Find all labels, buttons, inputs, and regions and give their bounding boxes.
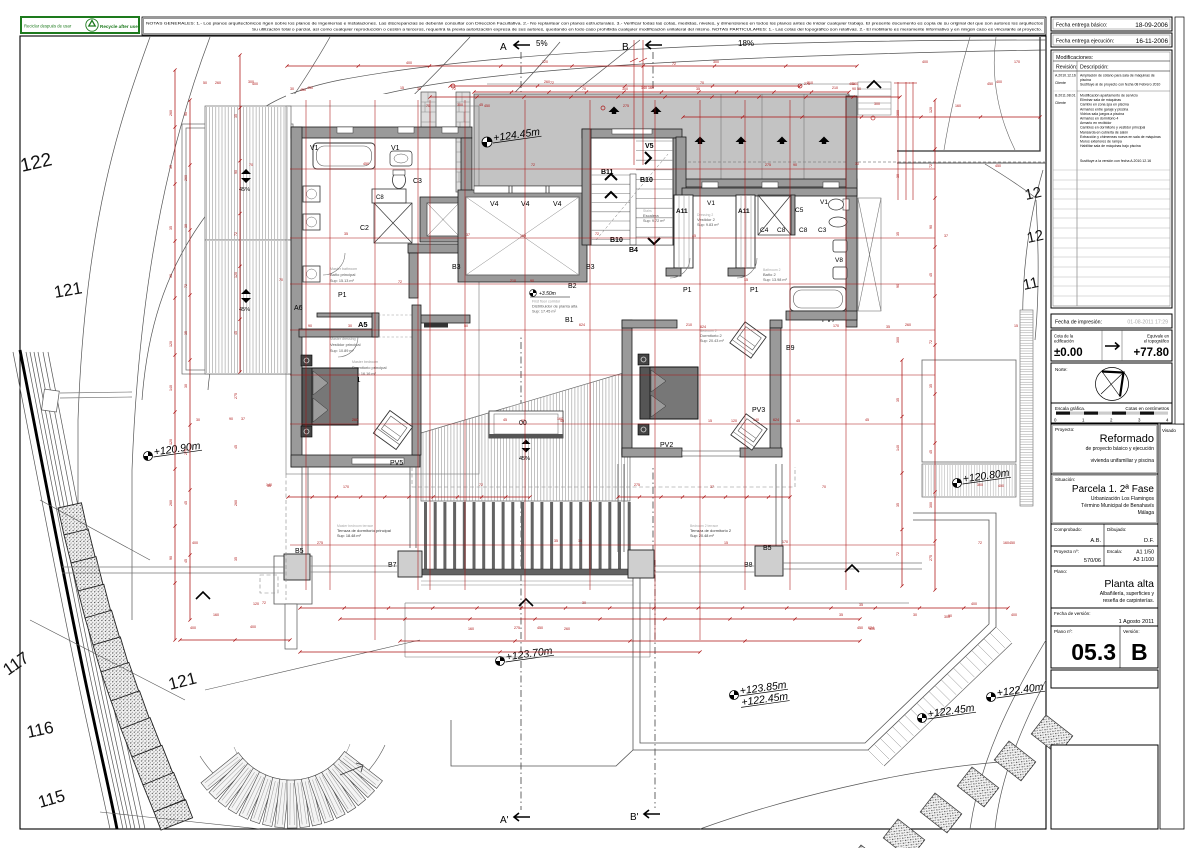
svg-text:A: A: [500, 42, 507, 53]
svg-text:Cliente: Cliente: [1055, 81, 1066, 85]
svg-text:V8: V8: [835, 257, 843, 264]
svg-text:12: 12: [1023, 184, 1043, 204]
svg-text:Mansarda en cubierta de salón: Mansarda en cubierta de salón: [1080, 130, 1128, 134]
svg-text:35: 35: [839, 613, 843, 617]
svg-text:C3: C3: [818, 227, 827, 234]
svg-text:C4: C4: [760, 227, 769, 234]
svg-text:P1: P1: [338, 292, 347, 299]
svg-text:C5: C5: [795, 207, 804, 214]
svg-text:NOTAS GENERALES: 1.- Los pla: NOTAS GENERALES: 1.- Los planos arquitec…: [146, 21, 1043, 26]
svg-text:300: 300: [896, 337, 900, 343]
svg-text:C8: C8: [777, 227, 786, 234]
svg-text:A1 1/50: A1 1/50: [1136, 550, 1154, 556]
svg-text:140: 140: [169, 385, 173, 391]
svg-text:260: 260: [234, 500, 238, 506]
svg-text:300: 300: [944, 615, 950, 619]
svg-text:B5: B5: [763, 545, 772, 552]
svg-text:PV3: PV3: [752, 407, 765, 414]
svg-text:18-09-2006: 18-09-2006: [1135, 22, 1168, 29]
svg-text:260: 260: [905, 323, 911, 327]
svg-text:45: 45: [865, 418, 869, 422]
svg-text:35: 35: [169, 226, 173, 230]
svg-text:B7: B7: [388, 562, 397, 569]
svg-text:72: 72: [978, 541, 982, 545]
svg-text:Extracción y chimeneas nueva e: Extracción y chimeneas nueva en sala de …: [1080, 135, 1161, 139]
svg-text:90: 90: [852, 87, 856, 91]
svg-text:70: 70: [700, 81, 704, 85]
svg-text:Escalera: Escalera: [643, 213, 659, 218]
svg-text:45: 45: [929, 273, 933, 277]
svg-text:C2: C2: [360, 225, 369, 232]
svg-text:400: 400: [869, 627, 875, 631]
svg-text:72: 72: [896, 552, 900, 556]
svg-text:170: 170: [782, 540, 788, 544]
svg-text:450: 450: [537, 626, 543, 630]
svg-text:Dormitorio 2: Dormitorio 2: [700, 333, 723, 338]
svg-text:V4: V4: [553, 201, 562, 208]
svg-text:reseña de carpinterías.: reseña de carpinterías.: [1103, 598, 1154, 604]
svg-text:Cambio en zona spa en piscina: Cambio en zona spa en piscina: [1080, 103, 1129, 107]
svg-text:05.3: 05.3: [1071, 639, 1116, 665]
svg-text:V5: V5: [645, 143, 654, 150]
svg-text:A6: A6: [294, 305, 303, 312]
svg-text:35: 35: [929, 384, 933, 388]
svg-text:450: 450: [300, 88, 306, 92]
svg-text:A.B.: A.B.: [1090, 538, 1101, 544]
svg-text:450: 450: [995, 164, 1001, 168]
svg-text:PV2: PV2: [660, 442, 673, 449]
svg-text:300: 300: [896, 110, 900, 116]
svg-text:Málaga: Málaga: [1138, 510, 1155, 516]
svg-text:B1: B1: [565, 317, 574, 324]
svg-text:Sup: 9.72 m²: Sup: 9.72 m²: [643, 219, 665, 223]
svg-text:300: 300: [874, 102, 880, 106]
svg-text:140: 140: [852, 82, 858, 86]
svg-text:170: 170: [1014, 60, 1020, 64]
svg-text:35: 35: [696, 87, 700, 91]
svg-text:275: 275: [514, 626, 520, 630]
svg-text:15: 15: [744, 278, 748, 282]
svg-text:Armarios entre garaje y piscin: Armarios entre garaje y piscina: [1080, 107, 1128, 111]
svg-text:170: 170: [833, 324, 839, 328]
svg-text:Urbanización Los Flamingos: Urbanización Los Flamingos: [1091, 496, 1155, 502]
svg-text:275: 275: [317, 541, 323, 545]
svg-text:A': A': [500, 815, 509, 826]
svg-text:400: 400: [971, 602, 977, 606]
svg-text:Situación:: Situación:: [1055, 477, 1075, 482]
svg-text:45: 45: [929, 450, 933, 454]
svg-text:450: 450: [307, 86, 313, 90]
svg-text:Reformado: Reformado: [1100, 433, 1154, 445]
svg-text:72: 72: [531, 163, 535, 167]
svg-text:90: 90: [793, 163, 797, 167]
svg-text:Su utilización total o parcial: Su utilización total o parcial, así como…: [252, 27, 1042, 32]
svg-text:570/06: 570/06: [1084, 558, 1101, 564]
svg-text:70: 70: [279, 278, 283, 282]
svg-text:Sup: 18.48 m²: Sup: 18.48 m²: [337, 534, 362, 538]
svg-text:160: 160: [520, 234, 526, 238]
svg-text:Escala gráfica.: Escala gráfica.: [1055, 406, 1085, 411]
svg-text:Sup: 17.45 m²: Sup: 17.45 m²: [532, 310, 557, 314]
svg-text:450: 450: [857, 626, 863, 630]
svg-text:45: 45: [796, 419, 800, 423]
svg-text:70: 70: [249, 163, 253, 167]
svg-text:45: 45: [234, 445, 238, 449]
svg-text:30: 30: [582, 601, 586, 605]
svg-text:B9: B9: [786, 345, 795, 352]
svg-text:Terraza de dormitorio 2: Terraza de dormitorio 2: [690, 528, 732, 533]
svg-text:210: 210: [686, 323, 692, 327]
svg-text:A.2010.12.16: A.2010.12.16: [1055, 74, 1076, 78]
svg-text:50: 50: [203, 81, 207, 85]
svg-text:C3: C3: [413, 178, 422, 185]
svg-text:90: 90: [896, 284, 900, 288]
svg-text:B.2011.08.01: B.2011.08.01: [1055, 94, 1076, 98]
svg-text:170: 170: [343, 485, 349, 489]
svg-text:400: 400: [996, 80, 1002, 84]
svg-text:120: 120: [234, 272, 238, 278]
svg-text:120: 120: [929, 107, 933, 113]
svg-text:piscina: piscina: [1080, 78, 1091, 82]
svg-text:Baño principal: Baño principal: [330, 272, 355, 277]
svg-text:72: 72: [479, 483, 483, 487]
svg-text:450: 450: [1009, 541, 1015, 545]
svg-text:35: 35: [886, 325, 890, 329]
svg-text:45: 45: [184, 501, 188, 505]
svg-text:45: 45: [560, 419, 564, 423]
svg-text:120: 120: [731, 419, 737, 423]
svg-text:275: 275: [929, 555, 933, 561]
svg-text:Modificaciones:: Modificaciones:: [1056, 55, 1093, 61]
svg-text:Eliminar sala de máquinas: Eliminar sala de máquinas: [1080, 98, 1121, 102]
svg-text:45%: 45%: [239, 187, 250, 193]
svg-text:30: 30: [348, 324, 352, 328]
svg-text:PV5: PV5: [390, 460, 403, 467]
svg-text:V4: V4: [521, 201, 530, 208]
svg-text:Cliente: Cliente: [1055, 101, 1066, 105]
svg-text:35: 35: [896, 398, 900, 402]
svg-text:90: 90: [229, 417, 233, 421]
svg-text:140: 140: [641, 86, 647, 90]
svg-text:275: 275: [765, 163, 771, 167]
svg-text:30: 30: [913, 613, 917, 617]
svg-text:Reciclar después de usar: Reciclar después de usar: [24, 23, 72, 28]
svg-text:Habilitar sala de máquinas baj: Habilitar sala de máquinas bajo piscina: [1080, 144, 1141, 148]
svg-text:72: 72: [550, 81, 554, 85]
svg-text:A5: A5: [358, 320, 368, 329]
svg-text:Término Municipal de Benahavís: Término Municipal de Benahavís: [1081, 503, 1154, 509]
svg-text:45: 45: [234, 331, 238, 335]
svg-text:400: 400: [192, 541, 198, 545]
svg-text:70: 70: [822, 485, 826, 489]
svg-text:37: 37: [944, 234, 948, 238]
svg-text:90: 90: [234, 170, 238, 174]
svg-text:B5: B5: [295, 548, 304, 555]
svg-text:Sustituye al de proyecto con f: Sustituye al de proyecto con fecha 08 Fe…: [1080, 83, 1160, 87]
svg-text:1 Agosto 2011: 1 Agosto 2011: [1119, 619, 1154, 625]
svg-text:50: 50: [857, 87, 861, 91]
svg-text:275: 275: [184, 449, 188, 455]
svg-text:72: 72: [929, 164, 933, 168]
svg-text:Sup: 20.48 m²: Sup: 20.48 m²: [690, 534, 715, 538]
svg-text:37: 37: [466, 233, 470, 237]
svg-text:Sustituye a la versión con fec: Sustituye a la versión con fecha A.2010.…: [1080, 159, 1151, 163]
svg-text:90: 90: [169, 556, 173, 560]
svg-text:72: 72: [184, 284, 188, 288]
svg-text:72: 72: [672, 62, 676, 66]
svg-text:120: 120: [542, 60, 548, 64]
svg-text:Comprobado:: Comprobado:: [1054, 527, 1082, 532]
svg-text:260: 260: [215, 81, 221, 85]
svg-text:120: 120: [253, 602, 259, 606]
svg-text:300: 300: [713, 60, 719, 64]
svg-text:30: 30: [196, 418, 200, 422]
svg-text:140: 140: [266, 483, 272, 487]
svg-text:90: 90: [308, 324, 312, 328]
svg-text:V1: V1: [820, 199, 828, 206]
svg-text:D.F.: D.F.: [1144, 538, 1154, 544]
svg-text:30: 30: [855, 162, 859, 166]
svg-text:15: 15: [1014, 324, 1018, 328]
svg-text:A3 1/100: A3 1/100: [1133, 557, 1154, 563]
svg-text:35: 35: [859, 603, 863, 607]
svg-text:45: 45: [184, 559, 188, 563]
svg-text:72: 72: [452, 87, 456, 91]
svg-text:624: 624: [579, 323, 585, 327]
svg-text:Revisión:: Revisión:: [1056, 65, 1077, 71]
svg-text:140: 140: [896, 445, 900, 451]
svg-text:275: 275: [623, 104, 629, 108]
svg-text:160: 160: [1003, 541, 1009, 545]
svg-text:35: 35: [554, 539, 558, 543]
svg-text:45: 45: [692, 234, 696, 238]
svg-text:37: 37: [241, 417, 245, 421]
svg-text:Distribuidor de planta alta: Distribuidor de planta alta: [532, 304, 578, 309]
svg-text:Albañilería, superficies y: Albañilería, superficies y: [1100, 591, 1155, 597]
svg-text:Master dressing: Master dressing: [330, 337, 356, 341]
svg-text:210: 210: [510, 279, 516, 283]
svg-text:260: 260: [169, 500, 173, 506]
svg-text:15: 15: [400, 86, 404, 90]
svg-text:12: 12: [1025, 227, 1045, 247]
svg-text:35: 35: [234, 114, 238, 118]
svg-text:±0.00: ±0.00: [1054, 347, 1083, 359]
svg-text:45: 45: [479, 103, 483, 107]
svg-text:15: 15: [578, 539, 582, 543]
svg-text:Planta alta: Planta alta: [1104, 578, 1154, 590]
svg-text:Dibujado:: Dibujado:: [1107, 527, 1126, 532]
svg-text:Vidrios sala juegos a piscina: Vidrios sala juegos a piscina: [1080, 112, 1124, 116]
svg-text:400: 400: [998, 484, 1004, 488]
svg-text:300: 300: [457, 103, 463, 107]
svg-text:120: 120: [169, 439, 173, 445]
svg-text:Armario en recibidor: Armario en recibidor: [1080, 121, 1112, 125]
svg-text:624: 624: [773, 418, 779, 422]
svg-text:B3: B3: [452, 264, 461, 271]
svg-text:70: 70: [582, 87, 586, 91]
svg-text:260: 260: [352, 418, 358, 422]
svg-text:Fecha entrega básico:: Fecha entrega básico:: [1056, 23, 1107, 29]
svg-text:C8: C8: [376, 195, 384, 201]
svg-text:30: 30: [184, 224, 188, 228]
svg-text:400: 400: [1011, 613, 1017, 617]
svg-text:90: 90: [530, 279, 534, 283]
svg-text:01-08-2011 17:29: 01-08-2011 17:29: [1127, 320, 1168, 326]
svg-text:37: 37: [710, 485, 714, 489]
svg-text:72: 72: [398, 280, 402, 284]
svg-text:260: 260: [169, 110, 173, 116]
svg-text:Proyecto:: Proyecto:: [1055, 427, 1074, 432]
svg-text:5%: 5%: [536, 39, 548, 48]
svg-text:Fecha entrega ejecución:: Fecha entrega ejecución:: [1056, 39, 1114, 45]
svg-text:Master bedroom: Master bedroom: [352, 360, 378, 364]
svg-text:V1: V1: [707, 200, 715, 207]
svg-text:35: 35: [896, 503, 900, 507]
svg-text:450: 450: [484, 104, 490, 108]
svg-text:de proyecto básico y ejecución: de proyecto básico y ejecución: [1086, 446, 1155, 452]
svg-text:Armarios en dormitorio 4: Armarios en dormitorio 4: [1080, 117, 1118, 121]
svg-text:B4: B4: [629, 247, 638, 254]
svg-text:35: 35: [184, 331, 188, 335]
svg-text:Sup: 9.83 m²: Sup: 9.83 m²: [697, 223, 719, 227]
svg-text:15: 15: [708, 419, 712, 423]
svg-text:A11: A11: [738, 208, 750, 215]
svg-text:Fecha de versión:: Fecha de versión:: [1054, 611, 1091, 616]
svg-text:Muros exteriores de rampa: Muros exteriores de rampa: [1080, 140, 1122, 144]
svg-text:210: 210: [807, 81, 813, 85]
svg-text:275: 275: [634, 483, 640, 487]
svg-text:B': B': [630, 812, 639, 823]
svg-text:160: 160: [213, 613, 219, 617]
svg-text:35: 35: [234, 557, 238, 561]
svg-text:P1: P1: [750, 287, 759, 294]
svg-text:30: 30: [184, 384, 188, 388]
svg-text:70: 70: [426, 104, 430, 108]
svg-text:45%: 45%: [519, 456, 530, 462]
svg-text:260: 260: [184, 175, 188, 181]
svg-text:35: 35: [896, 232, 900, 236]
svg-text:+3.50m: +3.50m: [539, 291, 556, 297]
svg-text:B10: B10: [640, 177, 653, 184]
svg-text:160: 160: [955, 104, 961, 108]
svg-text:Descripción:: Descripción:: [1080, 65, 1109, 71]
svg-text:Escala:: Escala:: [1107, 549, 1122, 554]
svg-text:Ampliación de sótano para sala: Ampliación de sótano para sala de máquin…: [1080, 74, 1155, 78]
svg-text:35: 35: [417, 87, 421, 91]
svg-text:+77.80: +77.80: [1134, 347, 1170, 359]
svg-text:Baño 2: Baño 2: [763, 272, 776, 277]
svg-text:Sup: 20.43 m²: Sup: 20.43 m²: [700, 339, 725, 343]
svg-text:50: 50: [464, 324, 468, 328]
svg-text:C8: C8: [799, 227, 808, 234]
svg-text:Cambios en dormitorio y vestid: Cambios en dormitorio y vestidor princip…: [1080, 126, 1145, 130]
svg-text:30: 30: [169, 274, 173, 278]
svg-text:45%: 45%: [239, 307, 250, 313]
svg-text:18%: 18%: [738, 39, 754, 48]
svg-text:B: B: [1131, 639, 1148, 665]
svg-text:90: 90: [929, 225, 933, 229]
svg-text:Terraza de dormitorio principa: Terraza de dormitorio principal: [337, 528, 391, 533]
svg-text:V1: V1: [310, 145, 319, 152]
svg-text:Plano:: Plano:: [1054, 569, 1067, 574]
svg-text:275: 275: [234, 393, 238, 399]
svg-text:72: 72: [234, 232, 238, 236]
svg-text:72: 72: [595, 232, 599, 236]
svg-text:Sup: 13.98 m²: Sup: 13.98 m²: [763, 278, 788, 282]
svg-text:35: 35: [169, 165, 173, 169]
svg-text:Master bathroom: Master bathroom: [330, 267, 357, 271]
svg-text:72: 72: [262, 601, 266, 605]
svg-text:37: 37: [521, 419, 525, 423]
svg-text:A11: A11: [676, 208, 688, 215]
svg-text:30: 30: [290, 87, 294, 91]
svg-text:160: 160: [468, 627, 474, 631]
svg-text:16-11-2006: 16-11-2006: [1136, 38, 1169, 45]
svg-text:400: 400: [922, 60, 928, 64]
svg-text:300: 300: [929, 502, 933, 508]
svg-text:260: 260: [564, 627, 570, 631]
svg-text:160: 160: [648, 86, 654, 90]
svg-text:400: 400: [190, 626, 196, 630]
svg-text:45: 45: [503, 418, 507, 422]
svg-text:B3: B3: [586, 264, 595, 271]
svg-text:Cotas en centímetros: Cotas en centímetros: [1125, 406, 1169, 411]
svg-text:210: 210: [832, 86, 838, 90]
svg-text:B: B: [622, 42, 629, 53]
svg-text:15: 15: [724, 541, 728, 545]
svg-text:Fecha de impresión:: Fecha de impresión:: [1055, 320, 1102, 326]
svg-text:Proyecto nº:: Proyecto nº:: [1054, 549, 1079, 554]
svg-text:300: 300: [977, 483, 983, 487]
svg-text:P1: P1: [683, 287, 692, 294]
svg-text:Parcela 1. 2ª Fase: Parcela 1. 2ª Fase: [1072, 484, 1155, 495]
svg-text:450: 450: [363, 162, 369, 166]
svg-text:el topográfico: el topográfico: [1144, 339, 1170, 344]
svg-text:B8: B8: [744, 562, 753, 569]
svg-text:Plano nº:: Plano nº:: [1054, 629, 1073, 634]
svg-text:Recycle after use: Recycle after use: [100, 24, 138, 29]
svg-text:Norte:: Norte:: [1055, 367, 1068, 372]
svg-text:624: 624: [700, 325, 706, 329]
svg-text:Versión:: Versión:: [1123, 629, 1140, 634]
svg-text:Modificación apartamento de se: Modificación apartamento de servicio: [1080, 94, 1138, 98]
svg-text:Visado: Visado: [1162, 428, 1176, 433]
svg-text:vivienda unifamiliar y piscina: vivienda unifamiliar y piscina: [1091, 458, 1155, 464]
svg-text:300: 300: [248, 80, 254, 84]
svg-text:72: 72: [929, 340, 933, 344]
svg-text:edificación: edificación: [1054, 339, 1074, 344]
svg-text:140: 140: [753, 418, 759, 422]
svg-text:Sup: 15.13 m²: Sup: 15.13 m²: [330, 279, 355, 283]
svg-text:450: 450: [987, 82, 993, 86]
svg-text:V4: V4: [490, 201, 499, 208]
svg-text:400: 400: [250, 625, 256, 629]
svg-text:35: 35: [344, 232, 348, 236]
svg-text:400: 400: [406, 61, 412, 65]
svg-text:300: 300: [622, 87, 628, 91]
svg-text:30: 30: [896, 174, 900, 178]
svg-text:120: 120: [169, 341, 173, 347]
svg-text:90: 90: [184, 112, 188, 116]
